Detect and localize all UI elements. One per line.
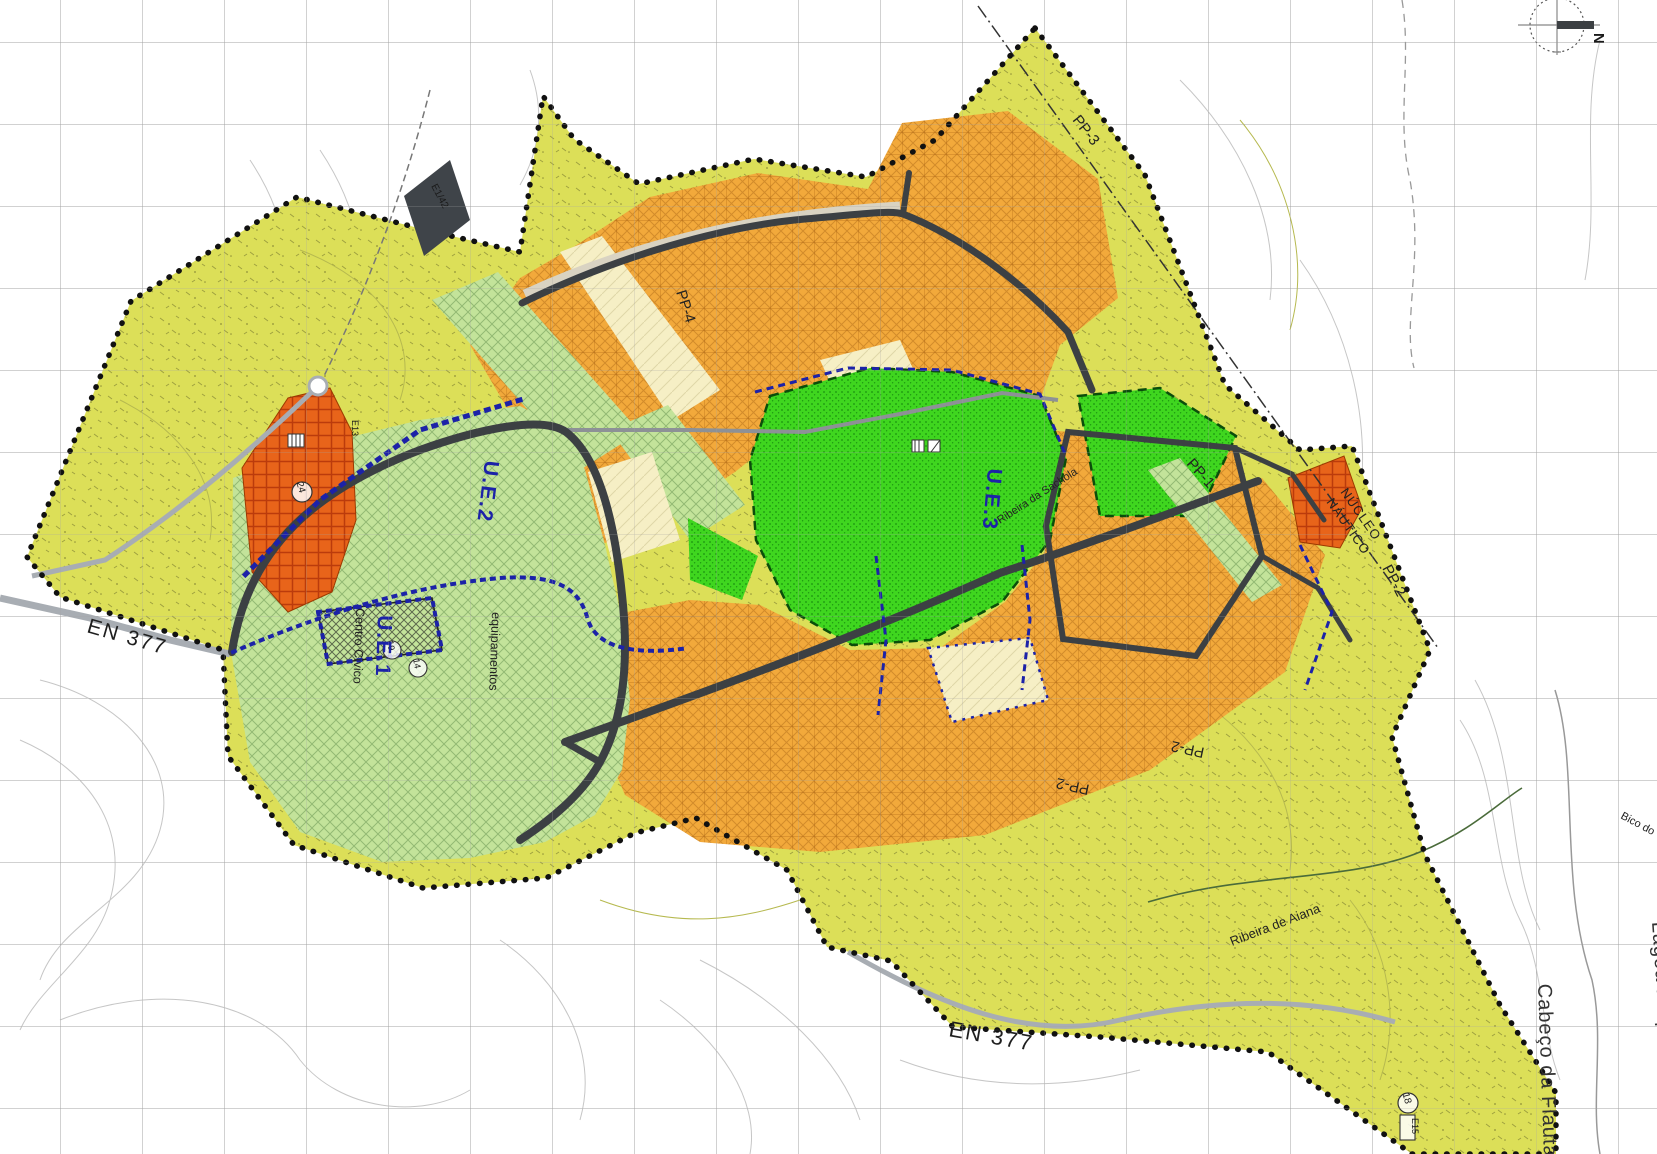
label-ue1: U.E.1 [371,615,396,678]
label-equipamentos: equipamentos [486,612,503,691]
urban-plan-map: N E1/42 24 18 14 19 E15 E13 EN 377 EN 37… [0,0,1657,1154]
marker-14: 14 [411,658,423,670]
roundabout [309,377,327,395]
label-centro-civico: Centro Cívico [350,608,367,684]
north-label: N [1590,33,1607,44]
map-canvas: N E1/42 24 18 14 19 E15 E13 EN 377 EN 37… [0,0,1657,1154]
marker-e15: E15 [1410,1118,1420,1134]
marker-e13: E13 [350,420,360,436]
